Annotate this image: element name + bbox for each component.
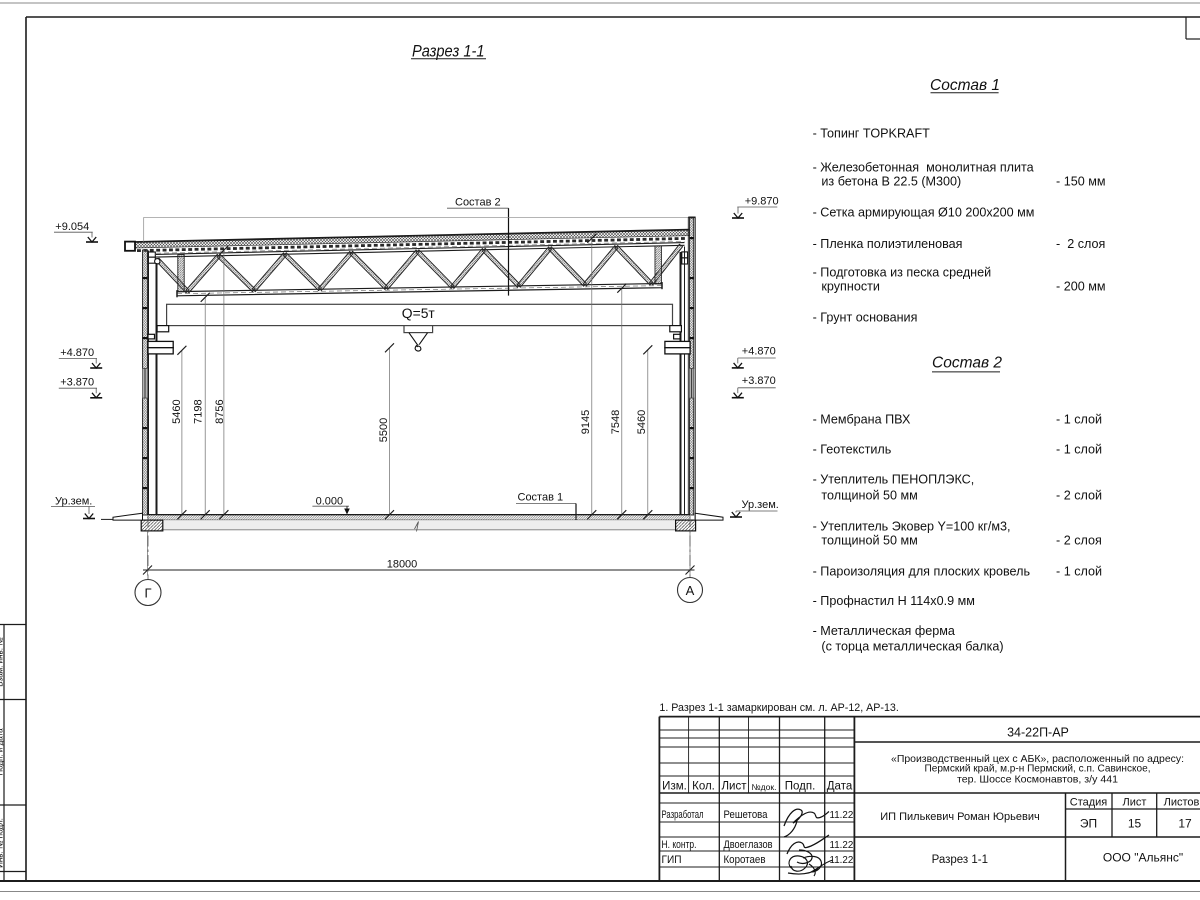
svg-text:Ур.зем.: Ур.зем. xyxy=(55,496,92,508)
svg-text:- Утеплитель Эковер Y=100 кг/м: - Утеплитель Эковер Y=100 кг/м3, xyxy=(813,520,1011,534)
svg-text:+3.870: +3.870 xyxy=(742,375,776,387)
svg-text:- 2 слой: - 2 слой xyxy=(1056,489,1102,503)
svg-text:Н. контр.: Н. контр. xyxy=(662,839,697,851)
svg-text:- Топинг TOPKRAFT: - Топинг TOPKRAFT xyxy=(813,127,931,141)
svg-text:Разрез 1-1: Разрез 1-1 xyxy=(412,43,485,61)
svg-text:- Грунт основания: - Грунт основания xyxy=(813,311,918,325)
svg-text:тер. Шоссе Космонавтов, з/у 44: тер. Шоссе Космонавтов, з/у 441 xyxy=(957,774,1118,785)
svg-text:Инв. № подл.: Инв. № подл. xyxy=(0,818,5,868)
svg-text:18000: 18000 xyxy=(387,559,418,571)
svg-text:- Мембрана ПВХ: - Мембрана ПВХ xyxy=(813,413,911,427)
svg-text:Листов: Листов xyxy=(1164,797,1200,809)
svg-text:Стадия: Стадия xyxy=(1070,797,1108,809)
svg-text:- 150 мм: - 150 мм xyxy=(1056,175,1106,189)
svg-text:- Железобетонная монолитная п: - Железобетонная монолитная плита xyxy=(813,161,1034,175)
svg-text:+4.870: +4.870 xyxy=(60,347,94,359)
svg-text:ЭП: ЭП xyxy=(1080,817,1097,831)
svg-text:Г: Г xyxy=(144,585,151,600)
svg-text:Разработал: Разработал xyxy=(662,809,704,821)
svg-text:+4.870: +4.870 xyxy=(742,346,776,358)
svg-text:- Подготовка из песка средней: - Подготовка из песка средней xyxy=(813,266,992,280)
svg-text:Состав 1: Состав 1 xyxy=(930,77,1000,94)
svg-text:5460: 5460 xyxy=(171,399,183,423)
svg-text:Подп.: Подп. xyxy=(785,781,816,793)
svg-text:(с торца металлическая балка): (с торца металлическая балка) xyxy=(821,640,1003,654)
svg-text:Дата: Дата xyxy=(827,781,853,793)
svg-text:Ур.зем.: Ур.зем. xyxy=(742,499,779,511)
svg-text:- Пароизоляция для плоских кро: - Пароизоляция для плоских кровель xyxy=(813,565,1031,579)
svg-text:- 1 слой: - 1 слой xyxy=(1056,565,1102,579)
svg-text:7548: 7548 xyxy=(610,410,622,434)
svg-text:толщиной 50 мм: толщиной 50 мм xyxy=(821,534,917,548)
svg-text:Пермский край, м.р-н Пермский,: Пермский край, м.р-н Пермский, с.п. Сави… xyxy=(925,763,1151,774)
svg-text:5500: 5500 xyxy=(378,418,390,442)
svg-text:- 2 слоя: - 2 слоя xyxy=(1056,237,1105,251)
svg-text:Q=5т: Q=5т xyxy=(402,306,435,321)
svg-text:34-22П-АР: 34-22П-АР xyxy=(1007,726,1069,740)
svg-text:ООО "Альянс": ООО "Альянс" xyxy=(1103,851,1183,865)
svg-text:9145: 9145 xyxy=(580,410,592,434)
svg-text:- 1 слой: - 1 слой xyxy=(1056,443,1102,457)
svg-text:Состав 2: Состав 2 xyxy=(932,355,1002,372)
svg-text:11.22: 11.22 xyxy=(830,810,854,821)
svg-text:Двоеглазов: Двоеглазов xyxy=(724,839,773,851)
svg-text:№док.: №док. xyxy=(752,782,777,792)
svg-text:- Сетка армирующая Ø10 200х200: - Сетка армирующая Ø10 200х200 мм xyxy=(813,206,1035,220)
svg-text:- 2 слоя: - 2 слоя xyxy=(1056,534,1102,548)
svg-text:1. Разрез 1-1 замаркирован см.: 1. Разрез 1-1 замаркирован см. л. АР-12,… xyxy=(659,702,898,714)
svg-text:17: 17 xyxy=(1178,817,1192,831)
svg-text:5460: 5460 xyxy=(636,410,648,434)
svg-text:Разрез 1-1: Разрез 1-1 xyxy=(932,854,988,866)
svg-text:толщиной 50 мм: толщиной 50 мм xyxy=(821,489,917,503)
svg-text:Подп. и дата: Подп. и дата xyxy=(0,728,5,776)
svg-text:Кол.: Кол. xyxy=(692,781,715,793)
svg-text:+9.054: +9.054 xyxy=(55,221,89,233)
svg-text:Взам. инв. №: Взам. инв. № xyxy=(0,637,5,687)
svg-text:Решетова: Решетова xyxy=(724,809,769,821)
svg-text:ИП Пилькевич Роман Юрьевич: ИП Пилькевич Роман Юрьевич xyxy=(880,811,1039,823)
svg-text:Коротаев: Коротаев xyxy=(724,854,766,866)
svg-text:- Геотекстиль: - Геотекстиль xyxy=(813,443,892,457)
svg-text:- Профнастил Н 114х0.9 мм: - Профнастил Н 114х0.9 мм xyxy=(813,594,975,608)
svg-text:крупности: крупности xyxy=(821,280,880,294)
svg-text:+3.870: +3.870 xyxy=(60,377,94,389)
svg-text:ГИП: ГИП xyxy=(662,854,682,866)
svg-text:Изм.: Изм. xyxy=(662,781,687,793)
svg-text:- 1 слой: - 1 слой xyxy=(1056,413,1102,427)
svg-text:+9.870: +9.870 xyxy=(745,196,779,208)
svg-text:- Металлическая ферма: - Металлическая ферма xyxy=(813,624,955,638)
svg-text:из бетона В 22.5 (М300): из бетона В 22.5 (М300) xyxy=(821,175,961,189)
svg-text:Лист: Лист xyxy=(722,781,748,793)
svg-text:Лист: Лист xyxy=(1123,797,1147,809)
svg-text:7198: 7198 xyxy=(193,399,205,423)
svg-text:Состав 1: Состав 1 xyxy=(518,492,564,504)
svg-text:А: А xyxy=(686,583,695,598)
svg-text:- Пленка полиэтиленовая: - Пленка полиэтиленовая xyxy=(813,237,963,251)
svg-text:11.22: 11.22 xyxy=(830,840,854,851)
svg-text:- Утеплитель ПЕНОПЛЭКС,: - Утеплитель ПЕНОПЛЭКС, xyxy=(813,473,975,487)
svg-text:8756: 8756 xyxy=(214,399,226,423)
svg-text:15: 15 xyxy=(1128,817,1142,831)
svg-text:Состав 2: Состав 2 xyxy=(455,196,501,208)
svg-text:0.000: 0.000 xyxy=(316,496,344,508)
svg-text:- 200 мм: - 200 мм xyxy=(1056,280,1106,294)
